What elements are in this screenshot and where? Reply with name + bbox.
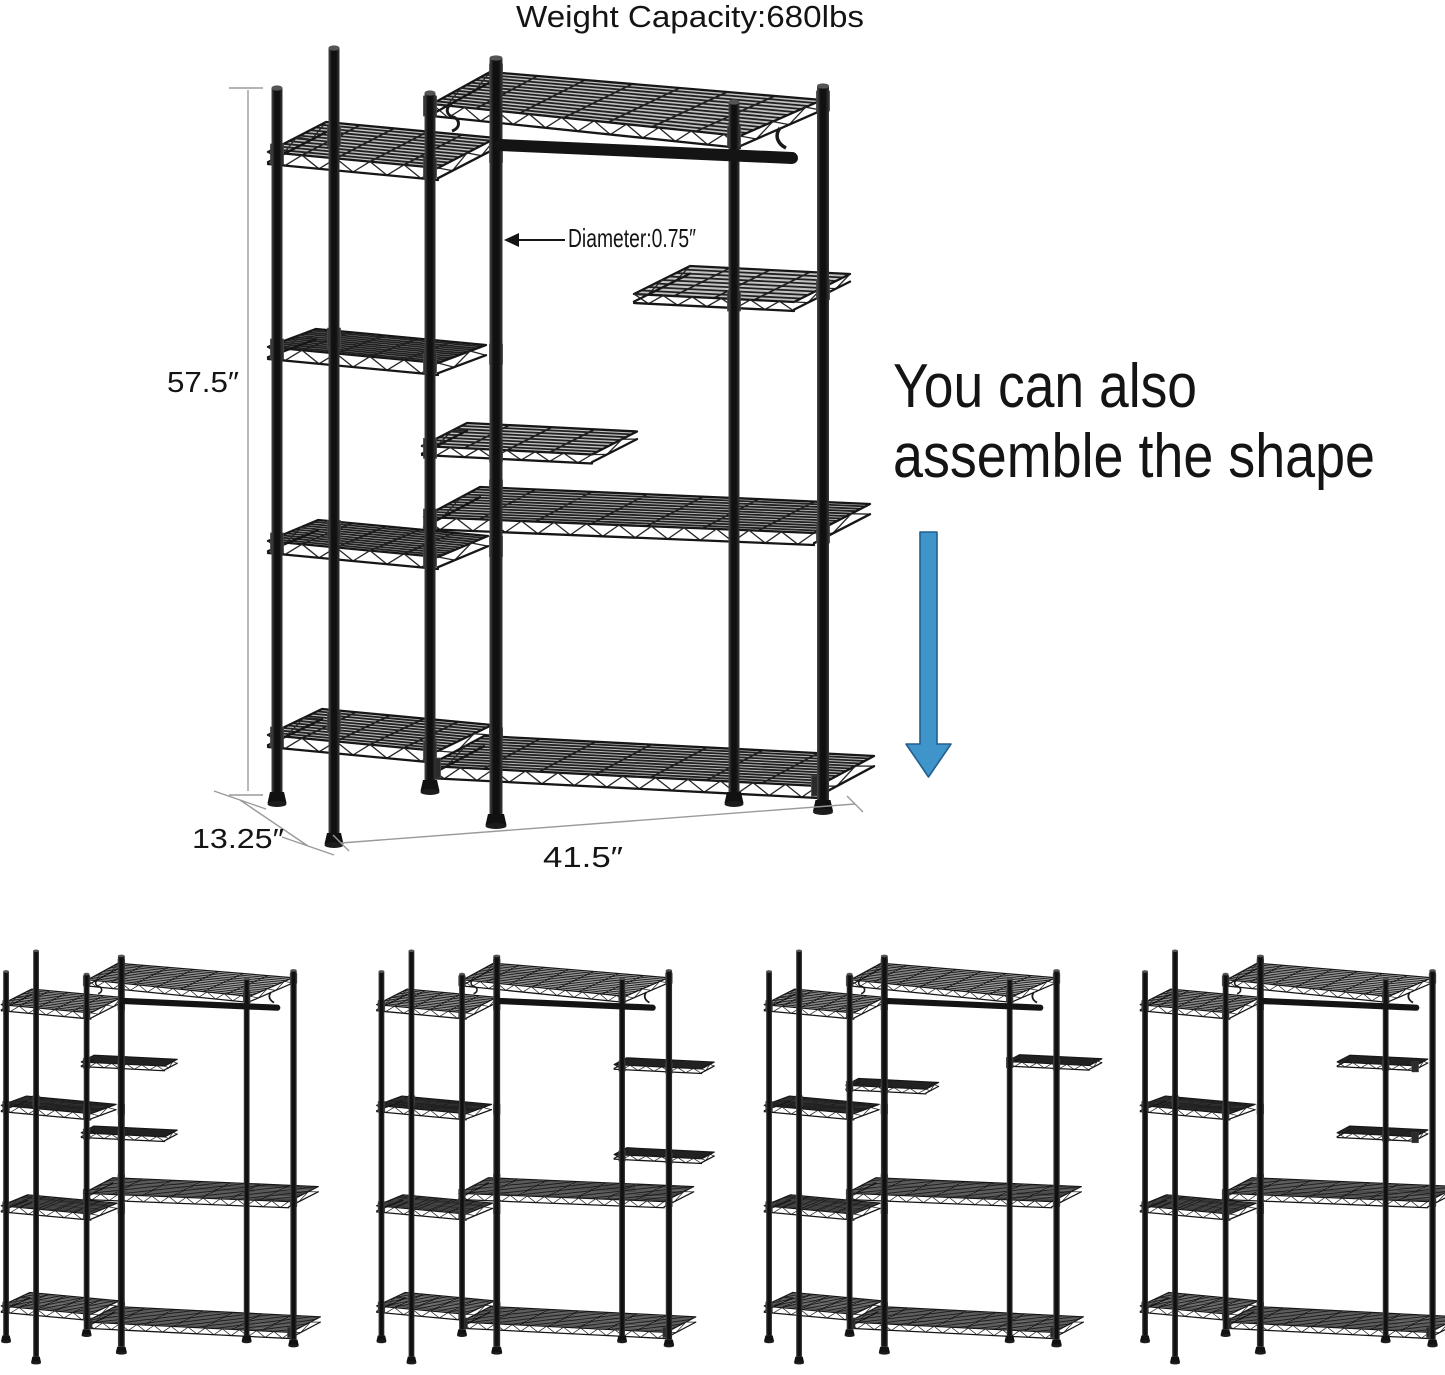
svg-text:Weight Capacity:680lbs: Weight Capacity:680lbs bbox=[516, 0, 864, 34]
svg-text:57.5″: 57.5″ bbox=[167, 367, 239, 399]
svg-text:You can also: You can also bbox=[893, 352, 1197, 421]
svg-text:13.25″: 13.25″ bbox=[192, 823, 284, 854]
svg-text:41.5″: 41.5″ bbox=[543, 842, 623, 874]
svg-text:Diameter:0.75″: Diameter:0.75″ bbox=[568, 223, 696, 253]
svg-text:assemble the shape: assemble the shape bbox=[893, 422, 1375, 491]
